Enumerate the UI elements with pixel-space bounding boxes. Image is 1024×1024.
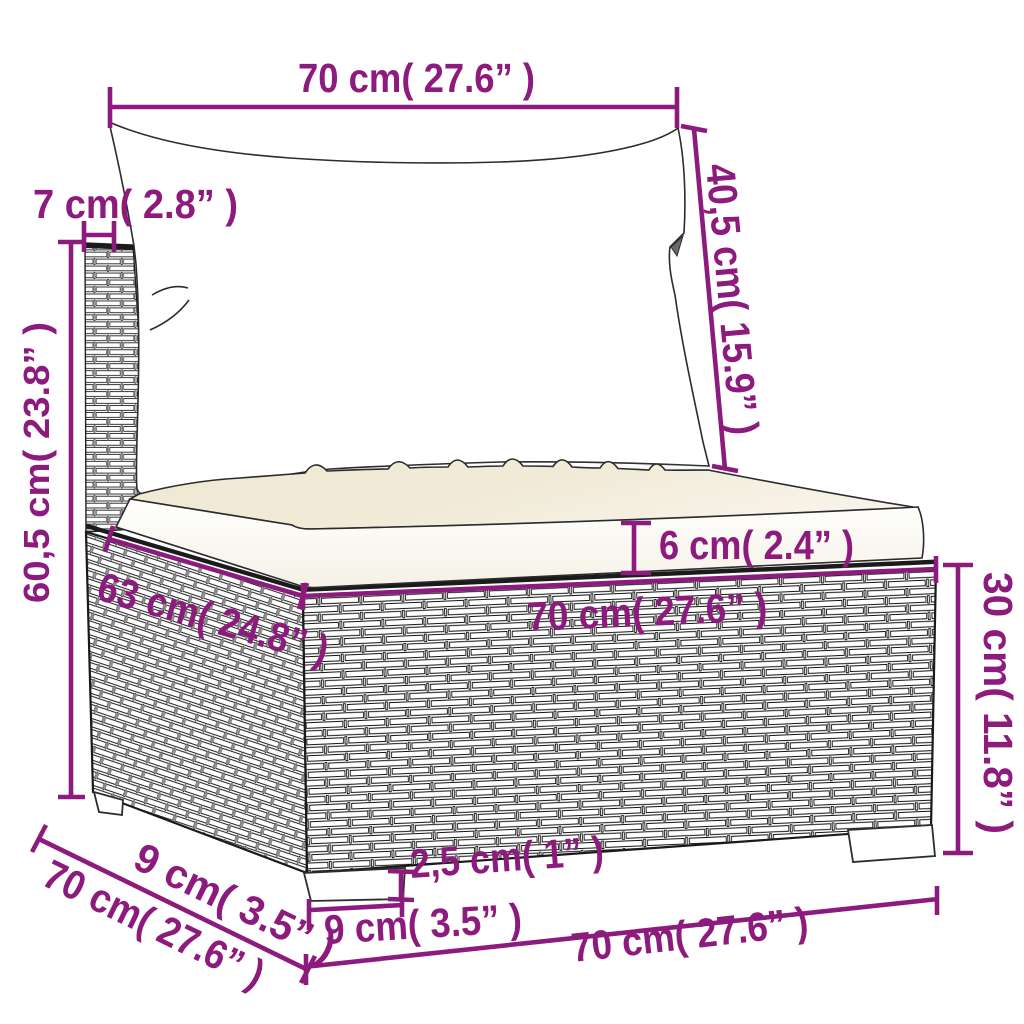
- svg-text:70 cm( 27.6” ): 70 cm( 27.6” ): [298, 55, 535, 101]
- svg-text:7 cm( 2.8” ): 7 cm( 2.8” ): [33, 181, 238, 227]
- svg-text:60,5 cm( 23.8” ): 60,5 cm( 23.8” ): [16, 322, 57, 603]
- svg-text:6 cm( 2.4” ): 6 cm( 2.4” ): [659, 522, 854, 568]
- svg-text:30 cm( 11.8” ): 30 cm( 11.8” ): [975, 572, 1021, 834]
